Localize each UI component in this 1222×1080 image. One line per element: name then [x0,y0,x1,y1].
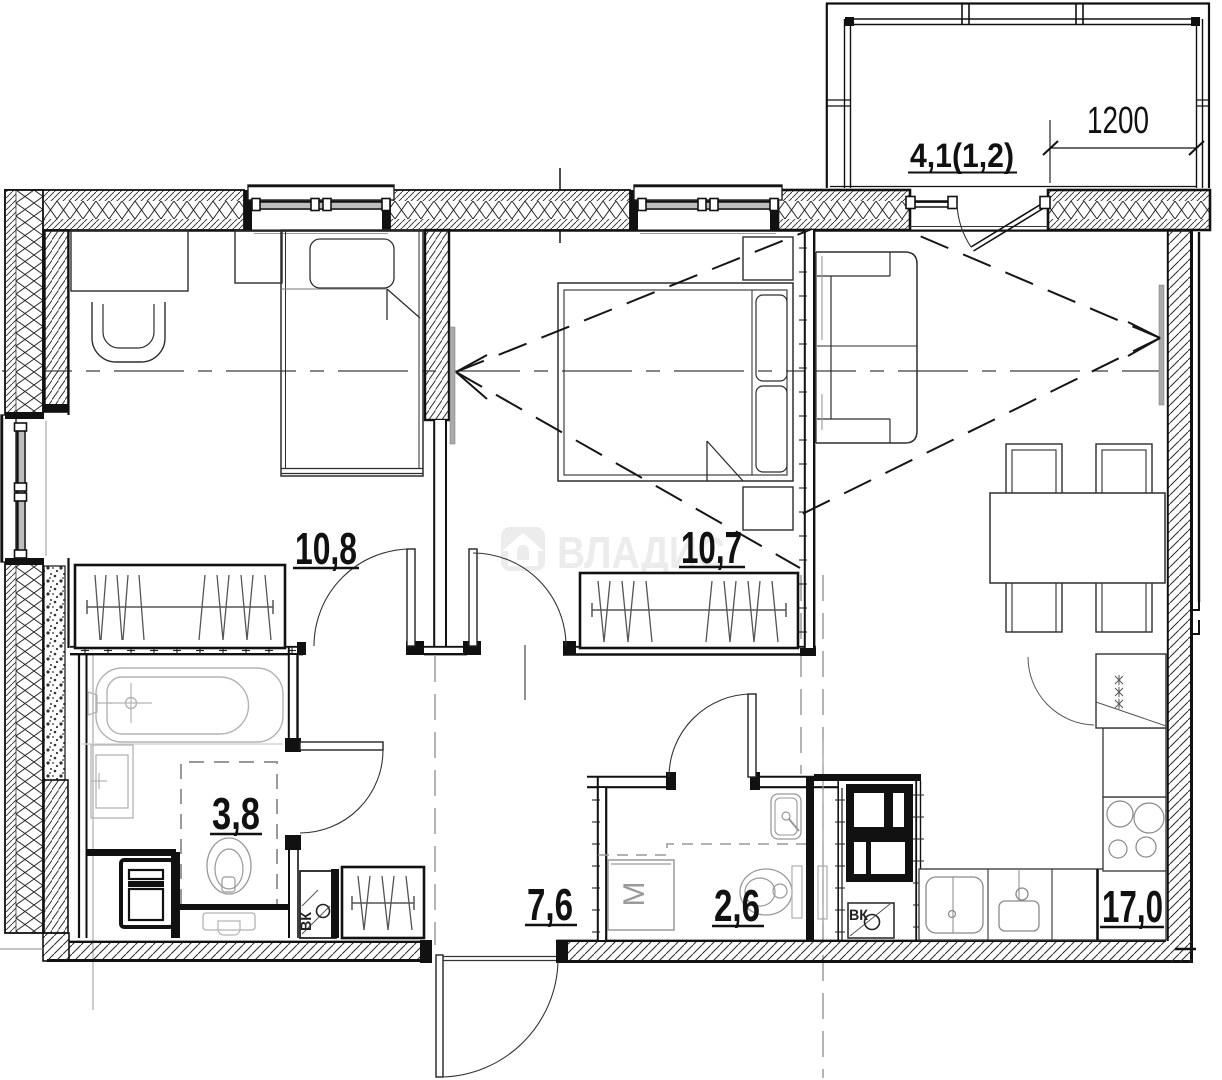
svg-text:ВК: ВК [298,911,315,931]
svg-text:M: M [618,882,651,907]
svg-text:2,6: 2,6 [714,880,760,931]
svg-text:4,1(1,2): 4,1(1,2) [910,137,1014,175]
svg-text:7,6: 7,6 [527,879,573,930]
svg-text:ВК: ВК [849,907,869,924]
svg-text:1200: 1200 [1087,100,1149,142]
svg-text:10,8: 10,8 [295,523,357,574]
svg-text:10,7: 10,7 [681,522,742,573]
svg-text:3,8: 3,8 [212,788,260,839]
svg-text:17,0: 17,0 [1102,881,1163,932]
